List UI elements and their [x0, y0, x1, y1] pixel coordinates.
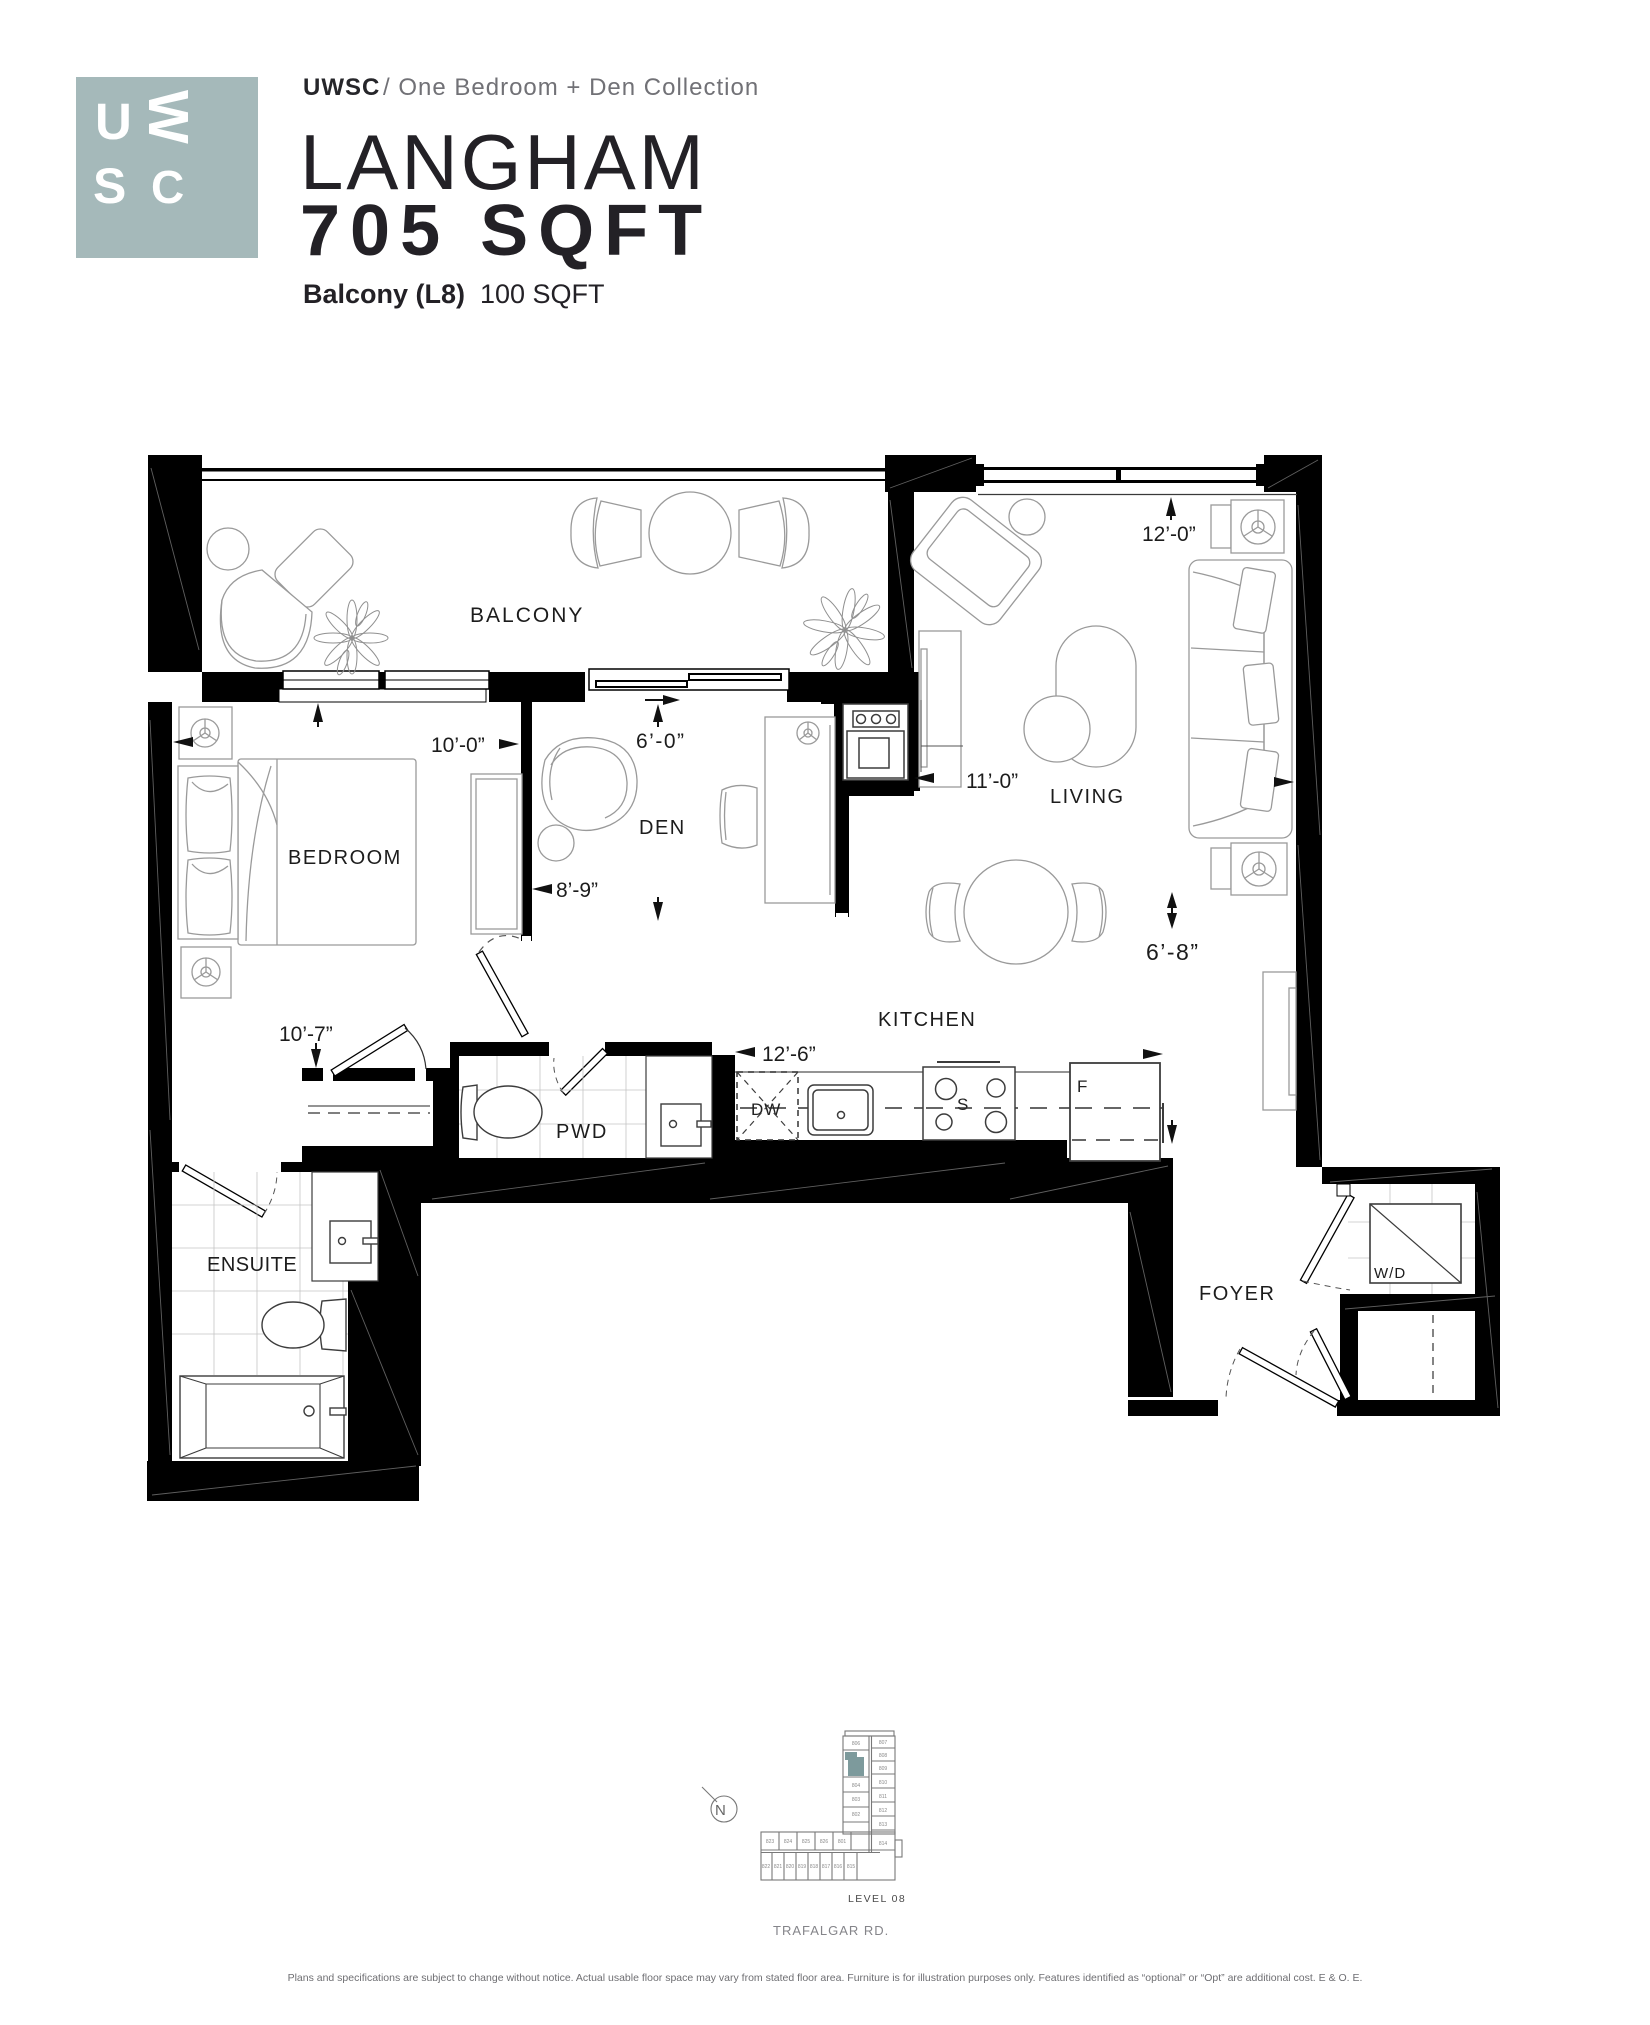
- svg-text:LIVING: LIVING: [1050, 786, 1125, 808]
- svg-text:819: 819: [798, 1864, 807, 1870]
- svg-text:N: N: [715, 1802, 726, 1819]
- svg-text:806: 806: [852, 1741, 861, 1747]
- svg-text:826: 826: [820, 1839, 829, 1845]
- svg-text:824: 824: [784, 1839, 793, 1845]
- svg-text:12’-0”: 12’-0”: [1142, 523, 1196, 546]
- svg-text:820: 820: [786, 1864, 795, 1870]
- svg-text:F: F: [1077, 1077, 1087, 1096]
- svg-text:815: 815: [847, 1864, 856, 1870]
- svg-text:C: C: [151, 161, 184, 213]
- svg-text:Balcony (L8): Balcony (L8): [303, 279, 465, 309]
- svg-text:W: W: [136, 90, 200, 144]
- svg-text:825: 825: [802, 1839, 811, 1845]
- svg-text:U: U: [95, 93, 132, 150]
- svg-text:8’-9”: 8’-9”: [556, 879, 598, 902]
- svg-text:813: 813: [879, 1822, 888, 1828]
- svg-text:UWSC: UWSC: [303, 74, 380, 101]
- svg-text:822: 822: [762, 1864, 771, 1870]
- svg-text:808: 808: [879, 1753, 888, 1759]
- svg-text:809: 809: [879, 1766, 888, 1772]
- svg-text:803: 803: [852, 1797, 861, 1803]
- svg-text:ENSUITE: ENSUITE: [207, 1254, 297, 1276]
- svg-text:12’-6”: 12’-6”: [762, 1043, 816, 1066]
- svg-text:11’-0”: 11’-0”: [966, 770, 1018, 793]
- svg-text:6’-0”: 6’-0”: [636, 730, 686, 753]
- svg-text:100 SQFT: 100 SQFT: [480, 279, 605, 309]
- svg-text:811: 811: [879, 1794, 887, 1800]
- svg-text:817: 817: [822, 1864, 831, 1870]
- svg-text:10’-0”: 10’-0”: [431, 734, 485, 757]
- svg-text:TRAFALGAR RD.: TRAFALGAR RD.: [773, 1923, 889, 1938]
- svg-text:LEVEL 08: LEVEL 08: [848, 1893, 906, 1905]
- svg-text:804: 804: [852, 1783, 861, 1789]
- svg-text:FOYER: FOYER: [1199, 1283, 1275, 1305]
- svg-text:814: 814: [879, 1841, 888, 1847]
- svg-text:10’-7”: 10’-7”: [279, 1023, 333, 1046]
- svg-text:705 SQFT: 705 SQFT: [300, 191, 712, 271]
- svg-text:816: 816: [834, 1864, 843, 1870]
- svg-text:6’-8”: 6’-8”: [1146, 939, 1200, 965]
- svg-text:KITCHEN: KITCHEN: [878, 1009, 976, 1031]
- svg-text:807: 807: [879, 1740, 888, 1746]
- svg-text:S: S: [957, 1095, 968, 1114]
- svg-text:810: 810: [879, 1780, 888, 1786]
- svg-text:802: 802: [852, 1812, 861, 1818]
- svg-text:818: 818: [810, 1864, 819, 1870]
- svg-text:823: 823: [766, 1839, 775, 1845]
- svg-text:821: 821: [774, 1864, 783, 1870]
- svg-text:Plans and specifications are s: Plans and specifications are subject to …: [288, 1972, 1363, 1984]
- svg-text:812: 812: [879, 1808, 888, 1814]
- svg-text:BEDROOM: BEDROOM: [288, 847, 402, 869]
- svg-text:/ One Bedroom + Den Collection: / One Bedroom + Den Collection: [383, 74, 759, 101]
- svg-text:PWD: PWD: [556, 1121, 608, 1143]
- svg-text:801: 801: [838, 1839, 847, 1845]
- svg-text:S: S: [93, 158, 126, 214]
- svg-text:W/D: W/D: [1374, 1265, 1406, 1282]
- svg-text:DEN: DEN: [639, 817, 686, 839]
- svg-text:BALCONY: BALCONY: [470, 604, 584, 627]
